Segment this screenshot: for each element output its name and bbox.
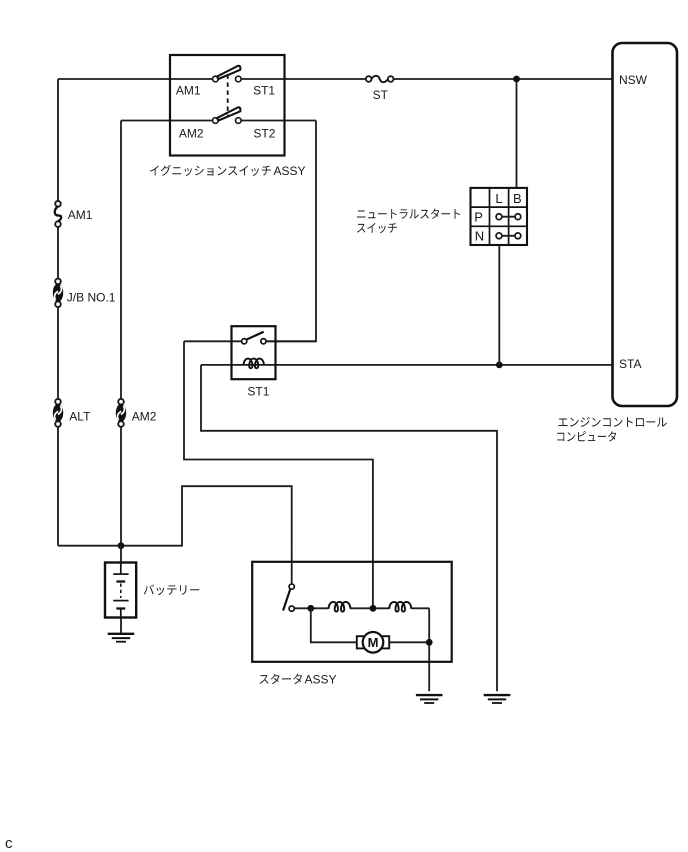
- svg-text:AM1: AM1: [176, 84, 201, 98]
- svg-text:c: c: [5, 835, 13, 852]
- svg-text:AM2: AM2: [179, 127, 204, 141]
- svg-text:STA: STA: [619, 357, 641, 371]
- svg-text:ST: ST: [373, 88, 389, 102]
- svg-text:L: L: [495, 191, 502, 206]
- svg-text:ST2: ST2: [253, 127, 275, 141]
- svg-text:ASSY: ASSY: [305, 673, 337, 687]
- svg-text:NSW: NSW: [619, 73, 648, 87]
- svg-text:B: B: [513, 191, 522, 206]
- svg-text:AM2: AM2: [132, 409, 157, 423]
- svg-text:ALT: ALT: [69, 409, 91, 423]
- svg-text:ST1: ST1: [247, 385, 269, 399]
- svg-text:J/B NO.1: J/B NO.1: [67, 290, 116, 304]
- svg-text:P: P: [474, 210, 483, 225]
- svg-text:AM1: AM1: [68, 208, 93, 222]
- svg-text:N: N: [475, 229, 484, 244]
- svg-text:M: M: [368, 635, 379, 650]
- svg-text:ASSY: ASSY: [274, 164, 306, 178]
- svg-text:ST1: ST1: [253, 84, 275, 98]
